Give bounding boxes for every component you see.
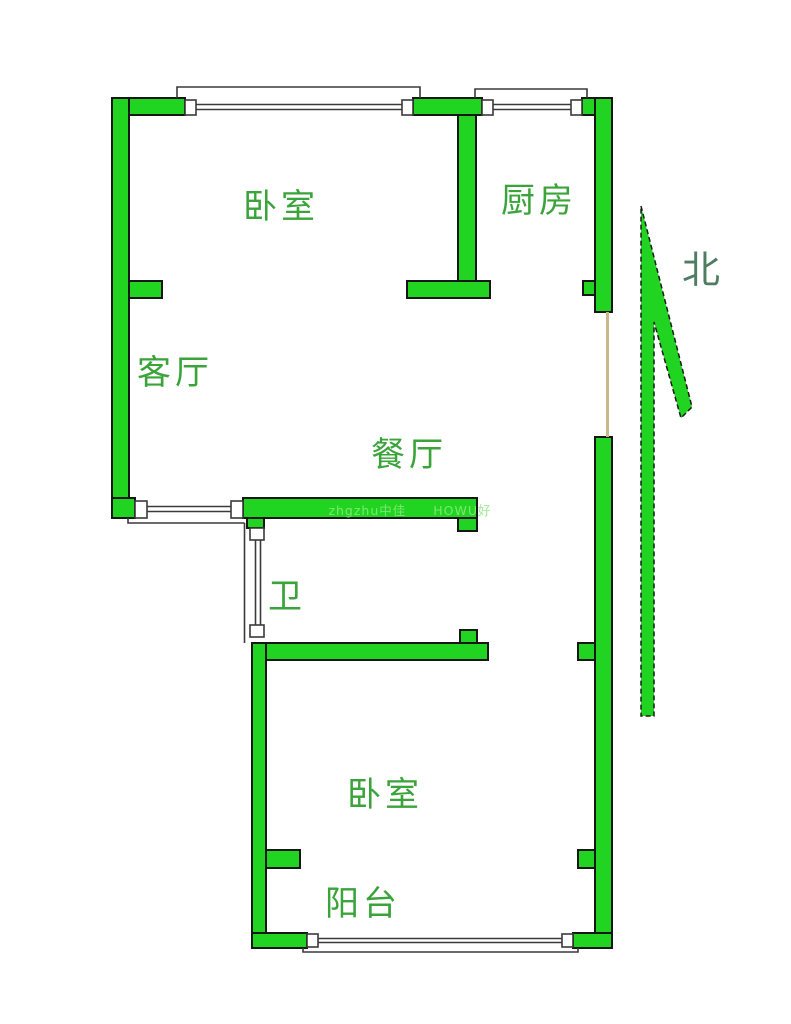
window-bay-line bbox=[475, 89, 587, 98]
window-bay-line bbox=[177, 87, 420, 98]
window-cap bbox=[231, 501, 243, 518]
window-balcony bbox=[303, 934, 578, 952]
window-cap bbox=[135, 501, 147, 518]
wall-bathroom-window-stub bbox=[247, 518, 264, 528]
wall-bedroom2-door-jamb-right bbox=[578, 643, 595, 660]
wall-balcony-bottom-left bbox=[252, 933, 307, 948]
wall-left bbox=[112, 98, 129, 518]
window-cap bbox=[185, 100, 196, 115]
wall-top-mid bbox=[413, 98, 482, 115]
room-labels: 卧室 厨房 客厅 餐厅 卫 卧室 阳台 bbox=[137, 181, 577, 924]
room-label-kitchen: 厨房 bbox=[501, 181, 577, 221]
window-bay-line bbox=[303, 948, 578, 952]
wall-bathroom-bottom bbox=[252, 643, 488, 660]
window-cap bbox=[307, 934, 318, 947]
window-cap bbox=[482, 100, 493, 115]
floor-plan: 卧室 厨房 客厅 餐厅 卫 卧室 阳台 北 zhgzhu中佳 HOWU好 bbox=[0, 0, 791, 1024]
room-label-bedroom-bottom: 卧室 bbox=[347, 775, 423, 815]
wall-bedroom-door-jamb-left bbox=[129, 281, 162, 298]
window-bedroom-top bbox=[177, 87, 420, 115]
north-label: 北 bbox=[682, 248, 720, 292]
window-cap bbox=[250, 625, 264, 637]
window-cap bbox=[250, 528, 264, 540]
window-cap bbox=[402, 100, 413, 115]
wall-right-upper bbox=[595, 98, 612, 312]
window-cap bbox=[571, 100, 582, 115]
watermark-text: zhgzhu中佳 HOWU好 bbox=[328, 503, 491, 518]
window-kitchen bbox=[475, 89, 587, 115]
wall-divider-bedroom-kitchen bbox=[458, 115, 476, 298]
wall-balcony-bottom-right bbox=[573, 933, 612, 948]
wall-balcony-jamb-right bbox=[578, 850, 595, 868]
wall-right-lower bbox=[595, 437, 612, 948]
window-living-bottom bbox=[128, 501, 245, 523]
wall-balcony-jamb-left bbox=[266, 850, 300, 868]
room-label-bathroom: 卫 bbox=[268, 577, 306, 617]
wall-bedroom-bottom-right bbox=[407, 281, 490, 298]
wall-living-bottom-corner bbox=[112, 498, 135, 518]
floor-plan-canvas: 卧室 厨房 客厅 餐厅 卫 卧室 阳台 北 zhgzhu中佳 HOWU好 bbox=[0, 0, 791, 1024]
room-label-dining-room: 餐厅 bbox=[371, 435, 447, 475]
window-cap bbox=[562, 934, 573, 947]
wall-bedroom2-left bbox=[252, 643, 266, 948]
wall-kitchen-door-jamb-right bbox=[583, 281, 595, 295]
room-label-balcony: 阳台 bbox=[325, 884, 401, 924]
room-label-bedroom-top: 卧室 bbox=[243, 187, 319, 227]
wall-bathroom-door-jamb-bottom bbox=[460, 630, 477, 643]
room-label-living-room: 客厅 bbox=[137, 353, 213, 393]
window-bathroom bbox=[245, 523, 265, 643]
wall-bathroom-door-jamb-top bbox=[458, 518, 477, 531]
